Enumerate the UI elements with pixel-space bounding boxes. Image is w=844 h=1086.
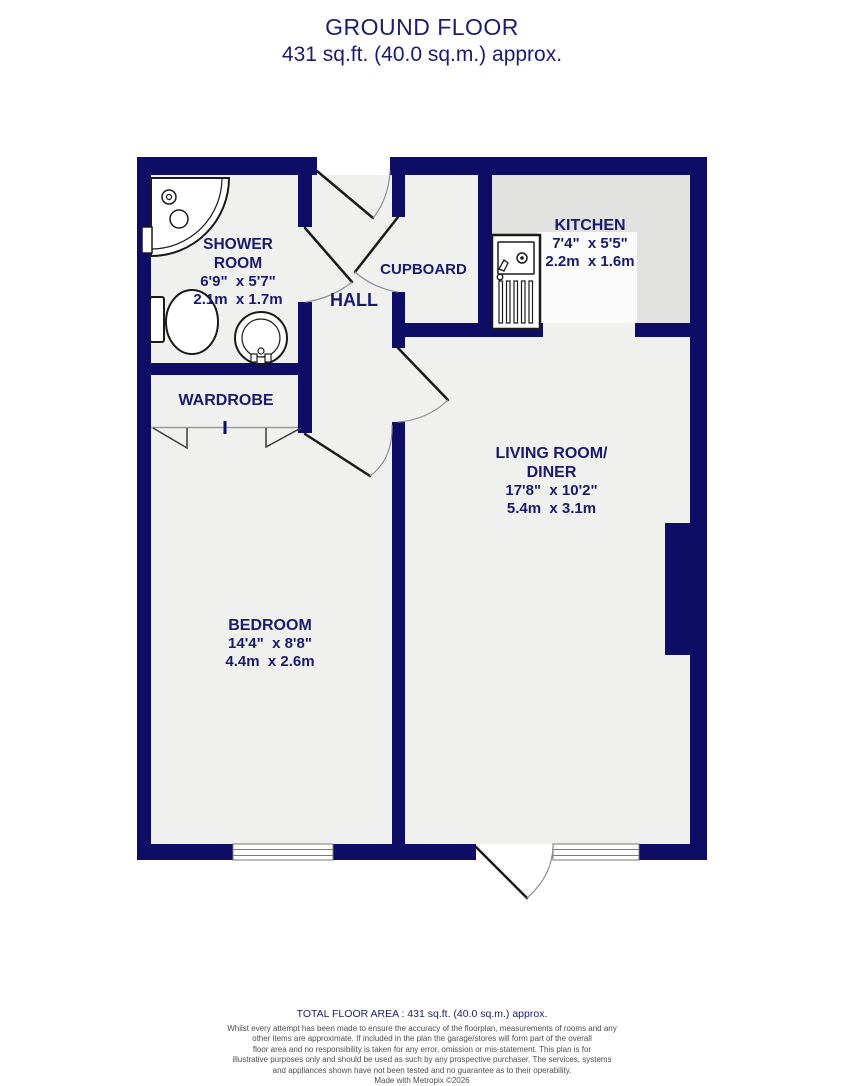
wash-basin	[235, 312, 287, 364]
wall-kitchen-left	[478, 175, 492, 323]
wardrobe-name: WARDROBE	[156, 391, 296, 410]
basin-tap-right	[265, 354, 271, 362]
wall-shower-hall-top	[298, 157, 312, 227]
label-living-room: LIVING ROOM/ DINER 17'8" x 10'2" 5.4m x …	[459, 444, 644, 518]
living-room-name: DINER	[459, 463, 644, 482]
patio-door-leaf	[476, 847, 527, 898]
disclaimer-line: and appliances shown have not been teste…	[0, 1066, 844, 1076]
disclaimer: Whilst every attempt has been made to en…	[0, 1024, 844, 1076]
label-cupboard: CUPBOARD	[351, 261, 496, 279]
toilet-cistern	[150, 297, 164, 342]
chimney-breast	[665, 523, 690, 655]
wall-bedroom-living	[392, 422, 405, 844]
bedroom-size-imperial: 14'4" x 8'8"	[180, 635, 360, 653]
shower-valve-panel	[142, 227, 152, 253]
floor-title: GROUND FLOOR	[0, 14, 844, 41]
total-floor-area: TOTAL FLOOR AREA : 431 sq.ft. (40.0 sq.m…	[0, 1008, 844, 1020]
cupboard-name: CUPBOARD	[351, 261, 496, 279]
wall-top-left	[137, 157, 317, 175]
wall-top-right	[390, 157, 707, 175]
disclaimer-line: Whilst every attempt has been made to en…	[0, 1024, 844, 1034]
disclaimer-line: floor area and no responsibility is take…	[0, 1045, 844, 1055]
wall-bottom-1	[137, 844, 233, 860]
patio-door-arc	[527, 847, 553, 898]
disclaimer-line: other items are approximate. If included…	[0, 1034, 844, 1044]
wall-left	[137, 157, 151, 860]
label-wardrobe: WARDROBE	[156, 391, 296, 410]
living-room-size-metric: 5.4m x 3.1m	[459, 500, 644, 518]
bedroom-window	[233, 844, 333, 860]
label-kitchen: KITCHEN 7'4" x 5'5" 2.2m x 1.6m	[510, 216, 670, 271]
disclaimer-line: illustrative purposes only and should be…	[0, 1055, 844, 1065]
wall-right	[690, 157, 707, 860]
metropix-credit: Made with Metropix ©2026	[0, 1076, 844, 1086]
bedroom-name: BEDROOM	[180, 616, 360, 635]
bedroom-size-metric: 4.4m x 2.6m	[180, 653, 360, 671]
plan-footer: TOTAL FLOOR AREA : 431 sq.ft. (40.0 sq.m…	[0, 1008, 844, 1086]
label-bedroom: BEDROOM 14'4" x 8'8" 4.4m x 2.6m	[180, 616, 360, 671]
label-shower-room: SHOWER ROOM 6'9" x 5'7" 2.1m x 1.7m	[168, 236, 308, 309]
shower-control-knob	[170, 210, 188, 228]
kitchen-name: KITCHEN	[510, 216, 670, 235]
hall-name: HALL	[304, 290, 404, 312]
shower-room-name: SHOWER	[168, 236, 308, 255]
basin-tap-left	[251, 354, 257, 362]
basin-bowl	[235, 312, 287, 364]
living-room-window	[553, 844, 639, 860]
floor-plan: SHOWER ROOM 6'9" x 5'7" 2.1m x 1.7m CUPB…	[137, 157, 707, 917]
shower-room-size-imperial: 6'9" x 5'7"	[168, 273, 308, 291]
wall-bottom-2	[333, 844, 476, 860]
floor-area-subtitle: 431 sq.ft. (40.0 sq.m.) approx.	[0, 43, 844, 67]
plan-title: GROUND FLOOR 431 sq.ft. (40.0 sq.m.) app…	[0, 14, 844, 67]
wall-cupboard-top	[392, 157, 405, 217]
wall-kitchen-bottom-right	[635, 323, 690, 337]
living-room-name: LIVING ROOM/	[459, 444, 644, 463]
living-room-size-imperial: 17'8" x 10'2"	[459, 482, 644, 500]
shower-room-name: ROOM	[168, 255, 308, 274]
wall-wardrobe-top	[137, 363, 312, 375]
label-hall: HALL	[304, 290, 404, 312]
kitchen-size-metric: 2.2m x 1.6m	[510, 253, 670, 271]
shower-room-size-metric: 2.1m x 1.7m	[168, 291, 308, 309]
kitchen-size-imperial: 7'4" x 5'5"	[510, 235, 670, 253]
